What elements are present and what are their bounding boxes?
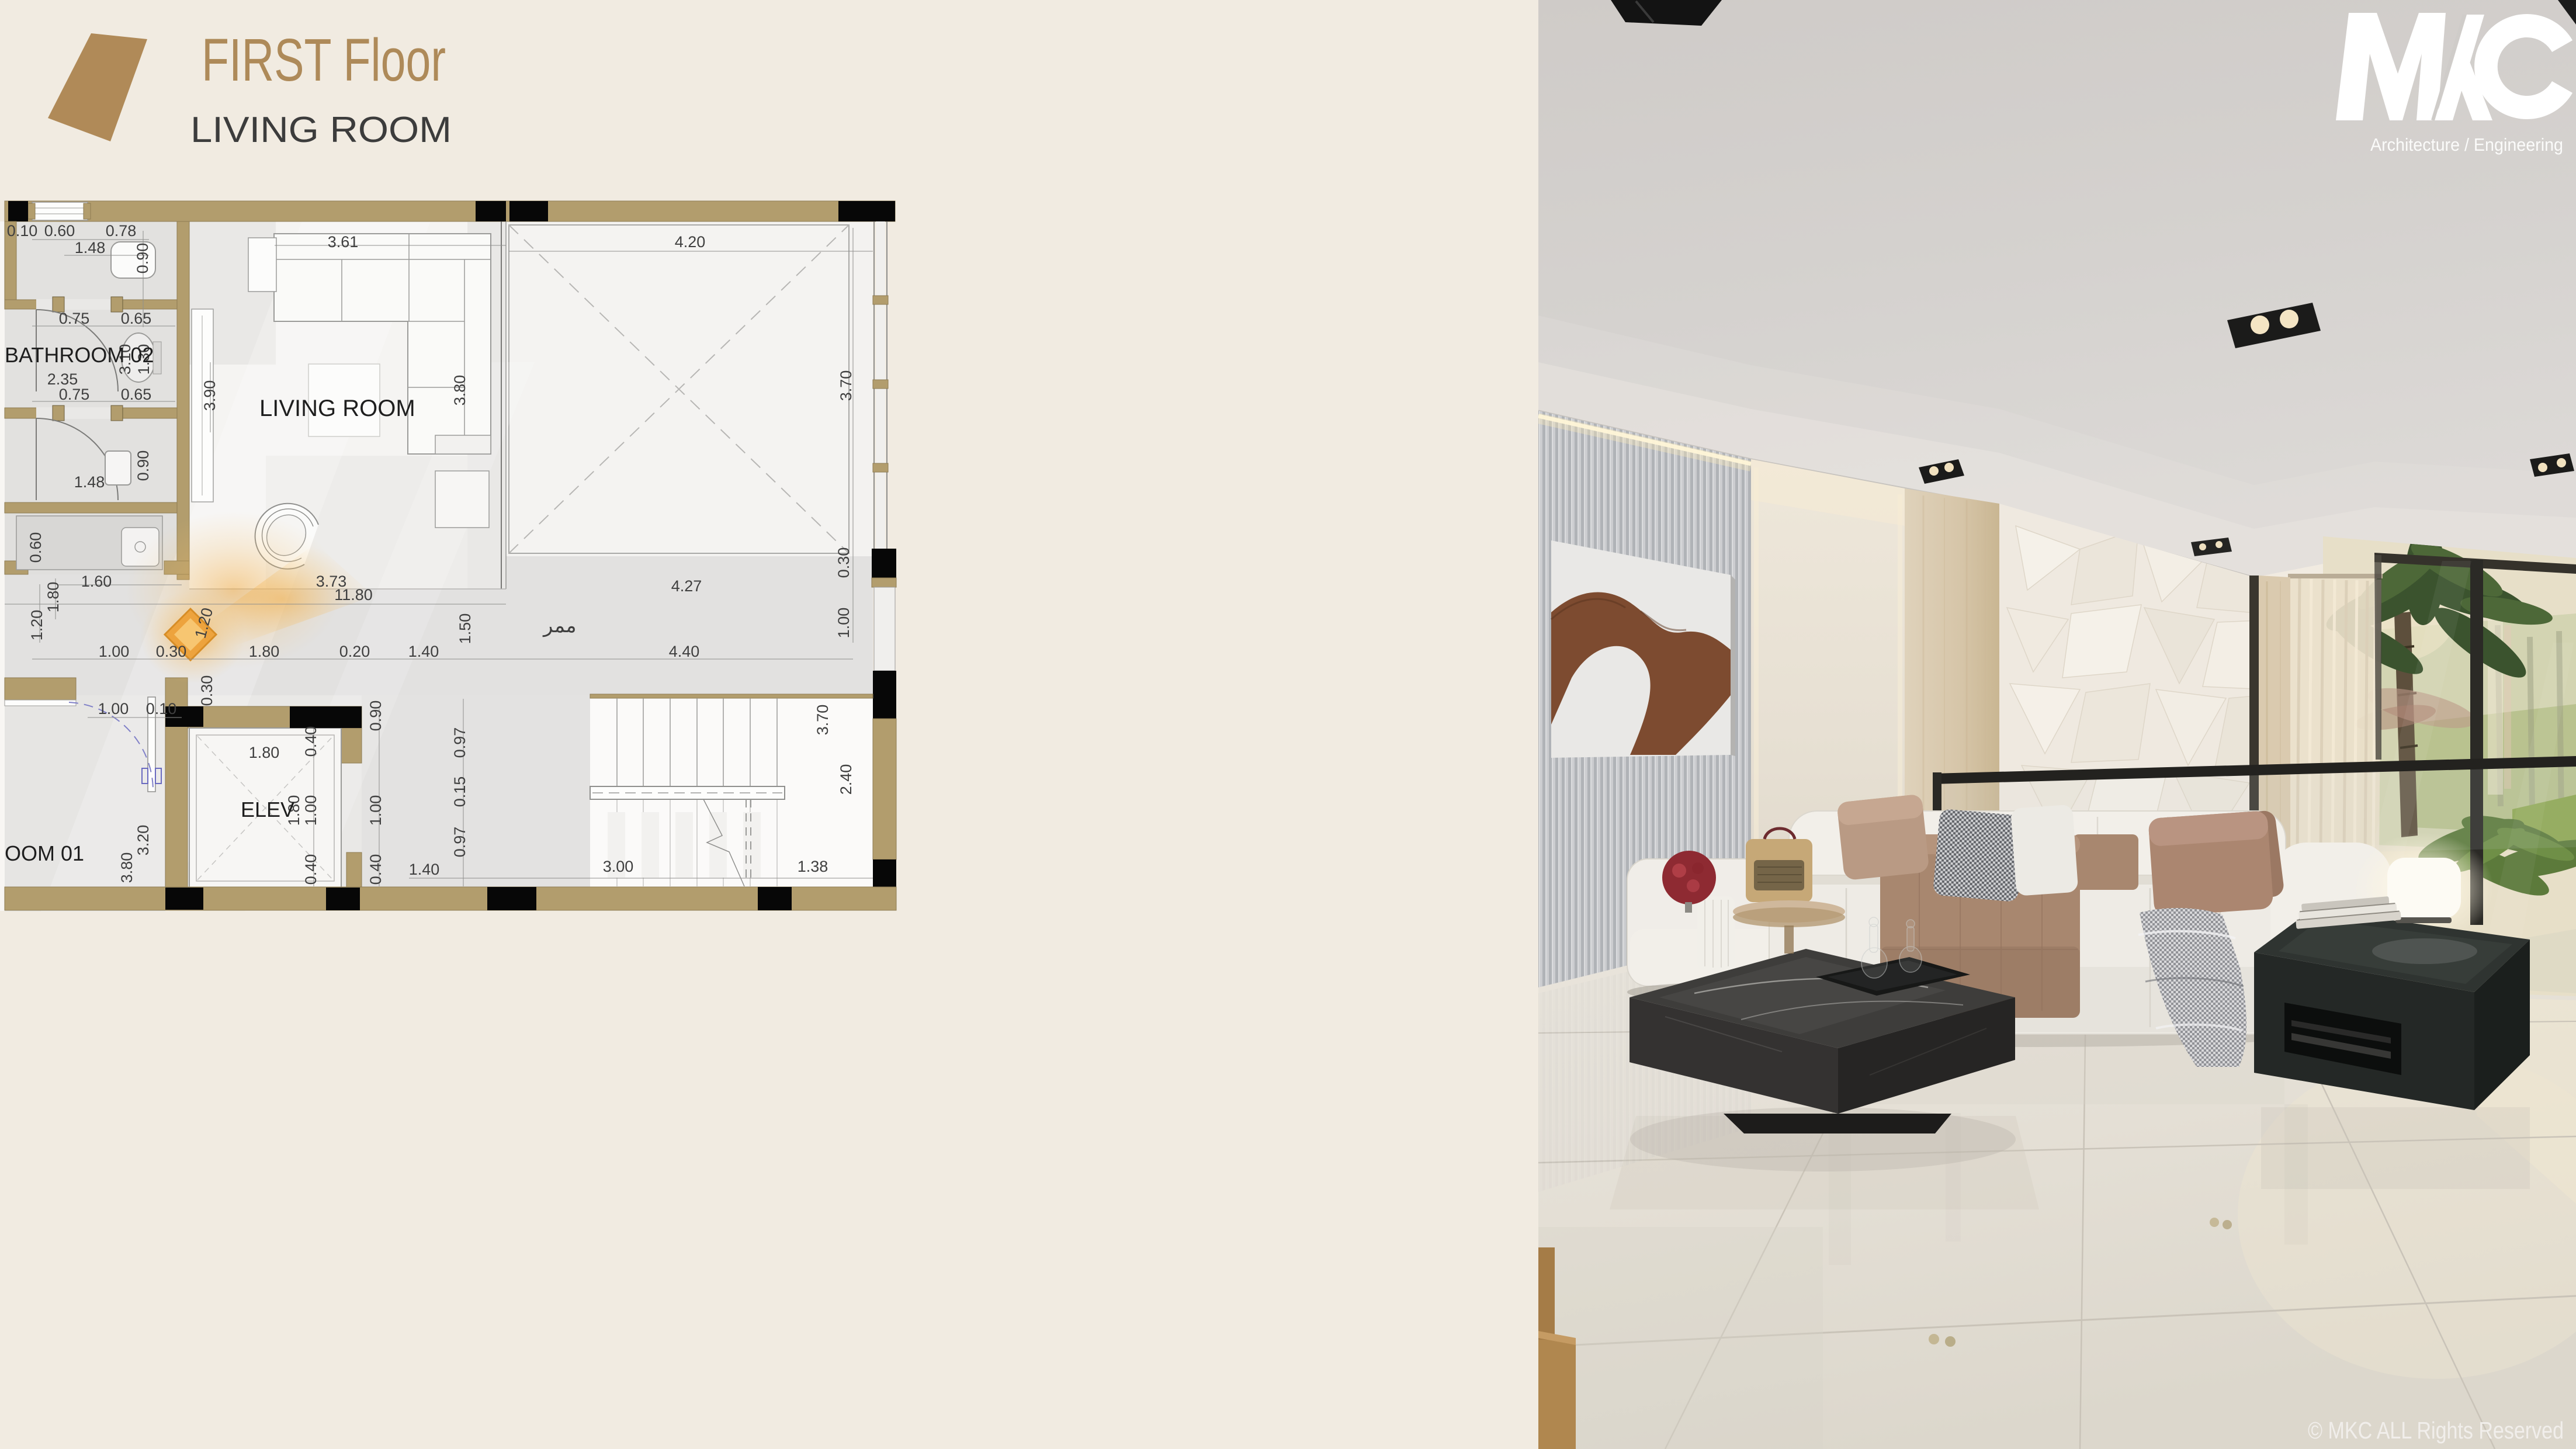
svg-text:1.00: 1.00 xyxy=(302,795,320,826)
svg-text:1.00: 1.00 xyxy=(98,700,129,717)
svg-text:ممر: ممر xyxy=(542,615,577,637)
svg-text:0.60: 0.60 xyxy=(27,532,44,563)
svg-text:0.97: 0.97 xyxy=(451,827,469,858)
svg-text:1.80: 1.80 xyxy=(249,643,280,660)
svg-text:11.80: 11.80 xyxy=(334,586,373,604)
svg-text:OOM 01: OOM 01 xyxy=(5,841,84,865)
svg-text:3.80: 3.80 xyxy=(118,852,136,883)
svg-text:1.38: 1.38 xyxy=(798,858,828,875)
svg-text:© MKC ALL Rights Reserved: © MKC ALL Rights Reserved xyxy=(2308,1417,2564,1444)
svg-text:4.20: 4.20 xyxy=(675,233,706,251)
svg-text:1.80: 1.80 xyxy=(44,582,62,613)
svg-text:0.40: 0.40 xyxy=(367,854,384,885)
svg-text:0.20: 0.20 xyxy=(339,643,370,660)
svg-text:1.00: 1.00 xyxy=(835,608,852,639)
svg-text:0.90: 0.90 xyxy=(134,243,151,274)
svg-text:LIVING ROOM: LIVING ROOM xyxy=(190,110,452,150)
svg-text:3.90: 3.90 xyxy=(201,380,219,411)
svg-text:1.40: 1.40 xyxy=(409,861,440,878)
svg-text:3.00: 3.00 xyxy=(603,858,634,875)
svg-text:0.65: 0.65 xyxy=(121,386,152,403)
svg-text:0.65: 0.65 xyxy=(121,310,152,327)
svg-text:0.15: 0.15 xyxy=(451,777,469,807)
svg-text:1.20: 1.20 xyxy=(28,610,46,641)
svg-text:3.61: 3.61 xyxy=(328,233,359,251)
svg-text:1.60: 1.60 xyxy=(81,573,112,590)
svg-text:0.30: 0.30 xyxy=(835,547,852,578)
svg-text:0.40: 0.40 xyxy=(302,726,320,757)
svg-text:3.20: 3.20 xyxy=(134,825,152,856)
svg-text:0.10: 0.10 xyxy=(7,222,38,240)
svg-text:0.30: 0.30 xyxy=(156,643,187,660)
svg-text:0.75: 0.75 xyxy=(59,386,90,403)
svg-text:1.48: 1.48 xyxy=(75,239,106,256)
svg-text:3.80: 3.80 xyxy=(451,375,469,406)
svg-text:0.40: 0.40 xyxy=(302,854,320,885)
svg-text:0.60: 0.60 xyxy=(44,222,75,240)
svg-text:0.75: 0.75 xyxy=(59,310,90,327)
svg-text:0.97: 0.97 xyxy=(451,727,469,758)
svg-text:Architecture / Engineering: Architecture / Engineering xyxy=(2370,134,2563,155)
svg-text:FIRST Floor: FIRST Floor xyxy=(202,26,446,93)
svg-text:ELEV: ELEV xyxy=(241,798,294,821)
svg-text:0.30: 0.30 xyxy=(198,675,216,706)
svg-text:0.78: 0.78 xyxy=(106,222,137,240)
svg-text:1.00: 1.00 xyxy=(367,795,384,826)
svg-text:4.40: 4.40 xyxy=(669,643,700,660)
svg-text:2.40: 2.40 xyxy=(837,764,855,795)
svg-text:3.70: 3.70 xyxy=(814,705,831,736)
svg-text:0.90: 0.90 xyxy=(367,701,384,732)
svg-text:1.48: 1.48 xyxy=(74,473,105,491)
svg-text:BATHROOM 02: BATHROOM 02 xyxy=(5,343,154,367)
svg-text:1.00: 1.00 xyxy=(99,643,130,660)
svg-text:LIVING ROOM: LIVING ROOM xyxy=(259,396,415,421)
svg-text:0.90: 0.90 xyxy=(134,450,152,481)
svg-text:3.70: 3.70 xyxy=(837,370,855,401)
svg-text:1.80: 1.80 xyxy=(249,744,280,761)
svg-text:1.50: 1.50 xyxy=(456,613,474,644)
svg-text:0.10: 0.10 xyxy=(146,700,177,717)
svg-text:4.27: 4.27 xyxy=(671,577,702,595)
svg-text:1.40: 1.40 xyxy=(408,643,439,660)
